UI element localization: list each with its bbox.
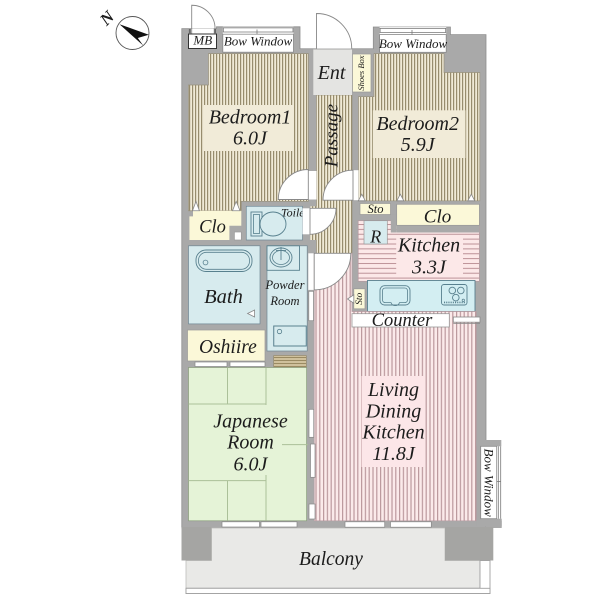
svg-text:Counter: Counter	[372, 311, 433, 331]
svg-text:Bow Window: Bow Window	[482, 449, 497, 518]
svg-text:6.0J: 6.0J	[234, 454, 269, 476]
svg-text:Room: Room	[226, 432, 274, 454]
svg-text:Bow Window: Bow Window	[224, 33, 293, 48]
svg-text:Clo: Clo	[199, 218, 226, 238]
svg-text:5.9J: 5.9J	[401, 134, 436, 156]
svg-text:Passage: Passage	[322, 104, 343, 168]
svg-text:3.3J: 3.3J	[411, 257, 447, 279]
svg-text:Oshiire: Oshiire	[199, 337, 257, 358]
svg-text:Bath: Bath	[204, 286, 243, 308]
svg-text:MB: MB	[192, 32, 212, 47]
svg-text:R: R	[369, 227, 381, 247]
svg-text:Living: Living	[367, 379, 419, 401]
svg-text:Sto: Sto	[355, 292, 365, 304]
svg-text:Clo: Clo	[424, 207, 451, 228]
svg-text:Powder: Powder	[265, 278, 305, 292]
svg-text:Room: Room	[269, 294, 299, 308]
svg-text:Bedroom1: Bedroom1	[209, 107, 292, 129]
svg-text:11.8J: 11.8J	[372, 443, 416, 465]
svg-text:Bedroom2: Bedroom2	[376, 113, 459, 135]
svg-text:Ent: Ent	[317, 62, 346, 84]
svg-text:Balcony: Balcony	[299, 549, 363, 570]
svg-text:Bow Window: Bow Window	[379, 36, 448, 51]
svg-text:Dining: Dining	[365, 401, 422, 423]
svg-text:Kitchen: Kitchen	[361, 422, 424, 444]
svg-text:6.0J: 6.0J	[233, 128, 268, 150]
svg-text:Sto: Sto	[368, 202, 384, 216]
svg-text:Kitchen: Kitchen	[397, 235, 460, 257]
svg-text:Japanese: Japanese	[213, 410, 288, 432]
svg-text:Shoes Box: Shoes Box	[356, 55, 366, 90]
